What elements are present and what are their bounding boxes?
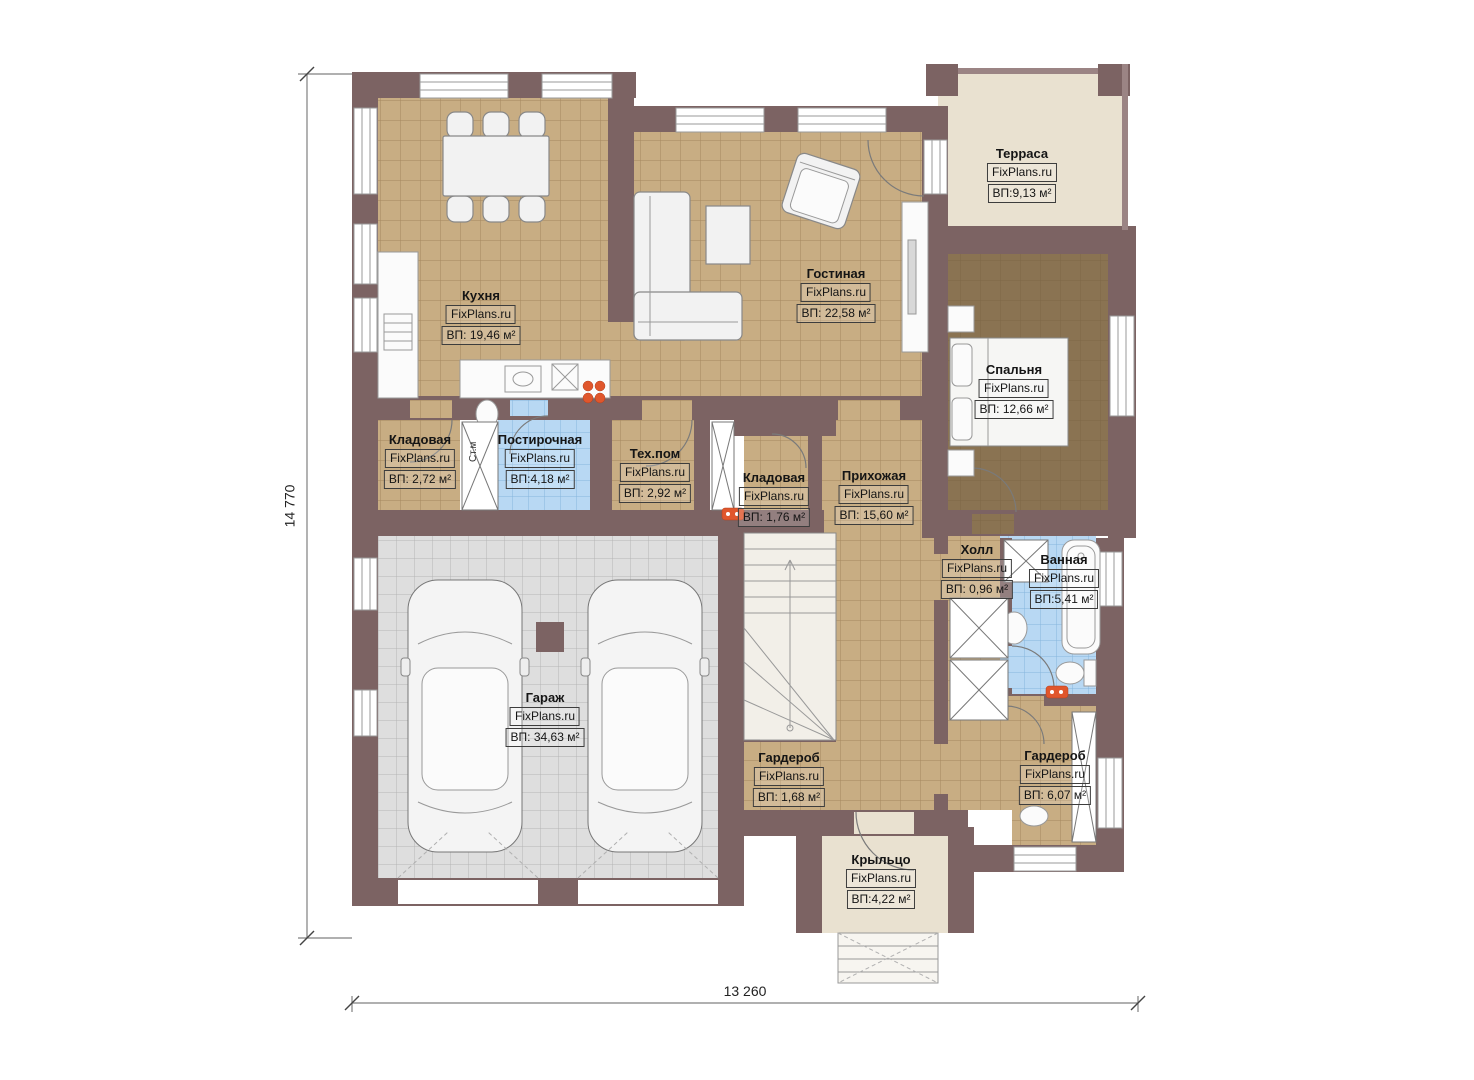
room-name: Холл xyxy=(941,542,1013,557)
window xyxy=(354,298,377,352)
watermark-box: FixPlans.ru xyxy=(1020,765,1090,784)
window xyxy=(798,108,886,132)
room-name: Тех.пом xyxy=(619,446,691,461)
watermark-box: FixPlans.ru xyxy=(446,305,516,324)
watermark-box: FixPlans.ru xyxy=(1029,569,1099,588)
toilet xyxy=(1056,660,1096,686)
window xyxy=(542,74,612,98)
watermark-box: FixPlans.ru xyxy=(942,559,1012,578)
area-box: ВП:9,13 м² xyxy=(988,184,1057,203)
room-label-garage: Гараж FixPlans.ru ВП: 34,63 м² xyxy=(506,690,585,747)
room-name: Постирочная xyxy=(498,432,582,447)
staircase xyxy=(744,533,836,740)
porch-steps xyxy=(838,933,938,983)
area-box: ВП: 1,68 м² xyxy=(753,788,825,807)
window xyxy=(354,224,377,284)
room-label-bedroom: Спальня FixPlans.ru ВП: 12,66 м² xyxy=(975,362,1054,419)
room-name: Гараж xyxy=(506,690,585,705)
terrace-door xyxy=(924,140,947,194)
window xyxy=(1098,552,1122,606)
area-box: ВП: 22,58 м² xyxy=(797,304,876,323)
wardrobe2-stool xyxy=(1020,806,1048,826)
area-box: ВП:4,22 м² xyxy=(847,890,916,909)
area-box: ВП: 6,07 м² xyxy=(1019,786,1091,805)
area-box: ВП: 34,63 м² xyxy=(506,728,585,747)
car xyxy=(581,580,709,852)
area-box: ВП: 0,96 м² xyxy=(941,580,1013,599)
room-label-kitchen: Кухня FixPlans.ru ВП: 19,46 м² xyxy=(442,288,521,345)
watermark-box: FixPlans.ru xyxy=(505,449,575,468)
watermark-box: FixPlans.ru xyxy=(754,767,824,786)
area-box: ВП: 2,72 м² xyxy=(384,470,456,489)
room-name: Гардероб xyxy=(1019,748,1091,763)
floor-plan-drawing xyxy=(0,0,1474,1080)
tv-console xyxy=(902,202,928,352)
window xyxy=(354,690,377,736)
hall-wardrobe-unit xyxy=(950,660,1008,720)
room-label-storage2: Кладовая FixPlans.ru ВП: 1,76 м² xyxy=(738,470,810,527)
area-box: ВП:4,18 м² xyxy=(506,470,575,489)
room-name: Терраса xyxy=(987,146,1057,161)
washing-machine-label: Ст.м xyxy=(468,442,479,462)
floor-plan-page: Терраса FixPlans.ru ВП:9,13 м² Кухня Fix… xyxy=(0,0,1474,1080)
watermark-box: FixPlans.ru xyxy=(846,869,916,888)
room-label-storage1: Кладовая FixPlans.ru ВП: 2,72 м² xyxy=(384,432,456,489)
window xyxy=(676,108,764,132)
room-name: Кладовая xyxy=(384,432,456,447)
watermark-box: FixPlans.ru xyxy=(987,163,1057,182)
room-label-hallway: Прихожая FixPlans.ru ВП: 15,60 м² xyxy=(835,468,914,525)
area-box: ВП: 12,66 м² xyxy=(975,400,1054,419)
watermark-box: FixPlans.ru xyxy=(385,449,455,468)
room-label-bathroom: Ванная FixPlans.ru ВП:5,41 м² xyxy=(1029,552,1099,609)
room-label-terrace: Терраса FixPlans.ru ВП:9,13 м² xyxy=(987,146,1057,203)
room-label-porch: Крыльцо FixPlans.ru ВП:4,22 м² xyxy=(846,852,916,909)
room-label-hall: Холл FixPlans.ru ВП: 0,96 м² xyxy=(941,542,1013,599)
room-label-tech: Тех.пом FixPlans.ru ВП: 2,92 м² xyxy=(619,446,691,503)
watermark-box: FixPlans.ru xyxy=(620,463,690,482)
dimension-height-label: 14 770 xyxy=(281,485,297,528)
room-name: Кухня xyxy=(442,288,521,303)
room-name: Прихожая xyxy=(835,468,914,483)
room-name: Гостиная xyxy=(797,266,876,281)
window xyxy=(354,558,377,610)
room-name: Спальня xyxy=(975,362,1054,377)
hall-wardrobe-unit xyxy=(950,598,1008,658)
room-label-wardrobe2: Гардероб FixPlans.ru ВП: 6,07 м² xyxy=(1019,748,1091,805)
watermark-box: FixPlans.ru xyxy=(739,487,809,506)
area-box: ВП: 2,92 м² xyxy=(619,484,691,503)
watermark-box: FixPlans.ru xyxy=(979,379,1049,398)
window xyxy=(1098,758,1122,828)
area-box: ВП: 1,76 м² xyxy=(738,508,810,527)
area-box: ВП: 19,46 м² xyxy=(442,326,521,345)
window xyxy=(1110,316,1134,416)
area-box: ВП:5,41 м² xyxy=(1030,590,1099,609)
window xyxy=(354,108,377,194)
room-name: Ванная xyxy=(1029,552,1099,567)
room-label-laundry: Постирочная FixPlans.ru ВП:4,18 м² xyxy=(498,432,582,489)
dimension-width-label: 13 260 xyxy=(724,983,767,999)
closet xyxy=(462,422,498,510)
room-label-wardrobe1: Гардероб FixPlans.ru ВП: 1,68 м² xyxy=(753,750,825,807)
room-name: Крыльцо xyxy=(846,852,916,867)
window xyxy=(1014,847,1076,871)
room-name: Гардероб xyxy=(753,750,825,765)
dining-table xyxy=(443,112,549,222)
radiator-marker xyxy=(1046,686,1068,698)
watermark-box: FixPlans.ru xyxy=(839,485,909,504)
coffee-table xyxy=(706,206,750,264)
room-name: Кладовая xyxy=(738,470,810,485)
closet xyxy=(712,422,734,510)
area-box: ВП: 15,60 м² xyxy=(835,506,914,525)
watermark-box: FixPlans.ru xyxy=(801,283,871,302)
window xyxy=(420,74,508,98)
watermark-box: FixPlans.ru xyxy=(510,707,580,726)
room-label-living: Гостиная FixPlans.ru ВП: 22,58 м² xyxy=(797,266,876,323)
